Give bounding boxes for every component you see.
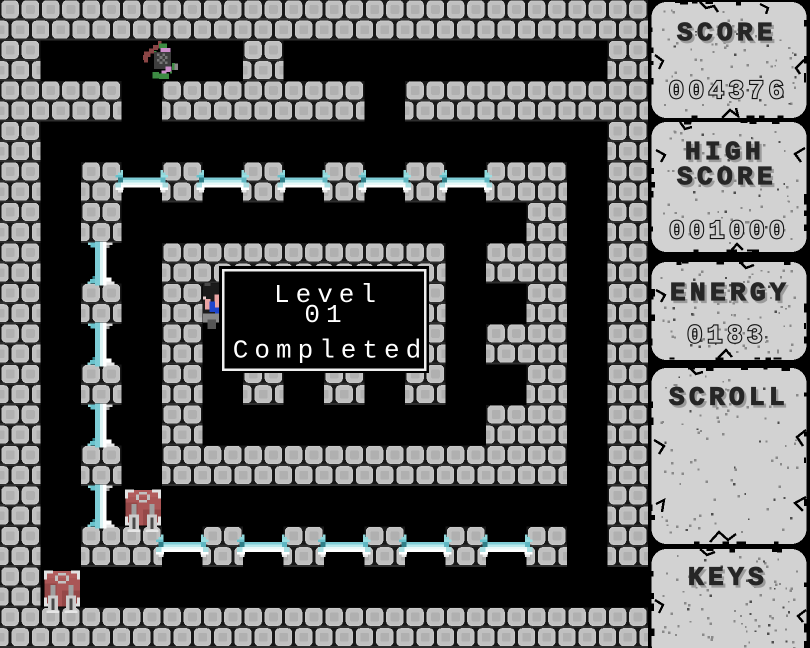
svg-text:ENERGY: ENERGY bbox=[670, 278, 790, 308]
svg-text:004376: 004376 bbox=[668, 76, 788, 106]
svg-text:SCORE: SCORE bbox=[677, 18, 777, 48]
svg-text:01: 01 bbox=[304, 300, 347, 330]
svg-text:SCROLL: SCROLL bbox=[669, 383, 789, 413]
svg-text:001000: 001000 bbox=[669, 216, 789, 246]
svg-text:SCORE: SCORE bbox=[677, 162, 777, 192]
svg-text:Completed: Completed bbox=[233, 336, 427, 366]
svg-text:0183: 0183 bbox=[687, 321, 767, 351]
svg-text:KEYS: KEYS bbox=[688, 563, 768, 593]
